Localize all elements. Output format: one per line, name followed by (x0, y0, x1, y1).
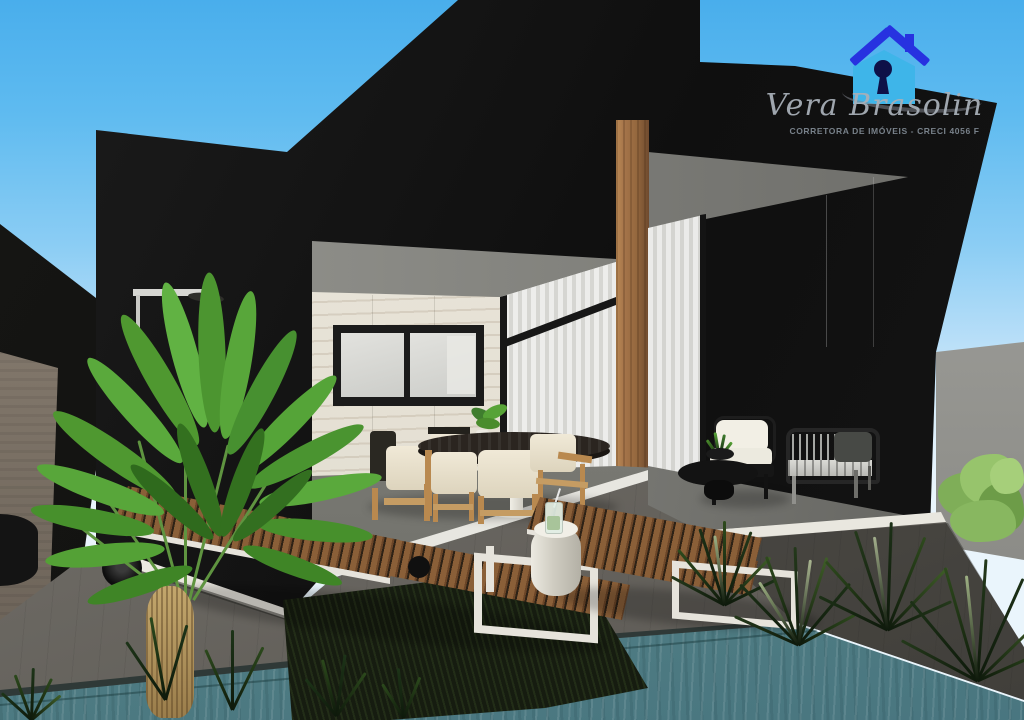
window (333, 325, 484, 406)
pendant-wire (873, 177, 874, 347)
watermark-brand-text: Vera Brasolin (762, 88, 987, 123)
ornamental-grass (928, 555, 1024, 681)
wood-pillar (616, 120, 649, 506)
drink-liquid (547, 516, 560, 530)
coffee-table (678, 456, 762, 502)
outdoor-bench (784, 424, 876, 506)
chaise-frame-post (486, 546, 494, 592)
realtor-watermark: Vera Brasolin CORRETORA DE IMÓVEIS - CRE… (750, 18, 1024, 148)
wall-ornament (0, 514, 38, 586)
bed-grass-tuft (300, 650, 370, 716)
window-pane-left (341, 333, 404, 397)
chaise-wheel-small (408, 556, 430, 578)
green-bush (938, 452, 1024, 556)
dining-chair (528, 428, 594, 508)
real-estate-house-render: Vera Brasolin CORRETORA DE IMÓVEIS - CRE… (0, 0, 1024, 720)
bed-grass-tuft (134, 600, 194, 700)
corner-plants (0, 668, 60, 720)
bed-grass-tuft (374, 662, 430, 718)
pendant-wire (826, 195, 827, 347)
window-reflection (447, 336, 475, 394)
bed-grass-tuft (196, 615, 266, 710)
ornamental-grass (752, 545, 842, 645)
watermark-tagline-text: CORRETORA DE IMÓVEIS - CRECI 4056 F (782, 126, 987, 136)
